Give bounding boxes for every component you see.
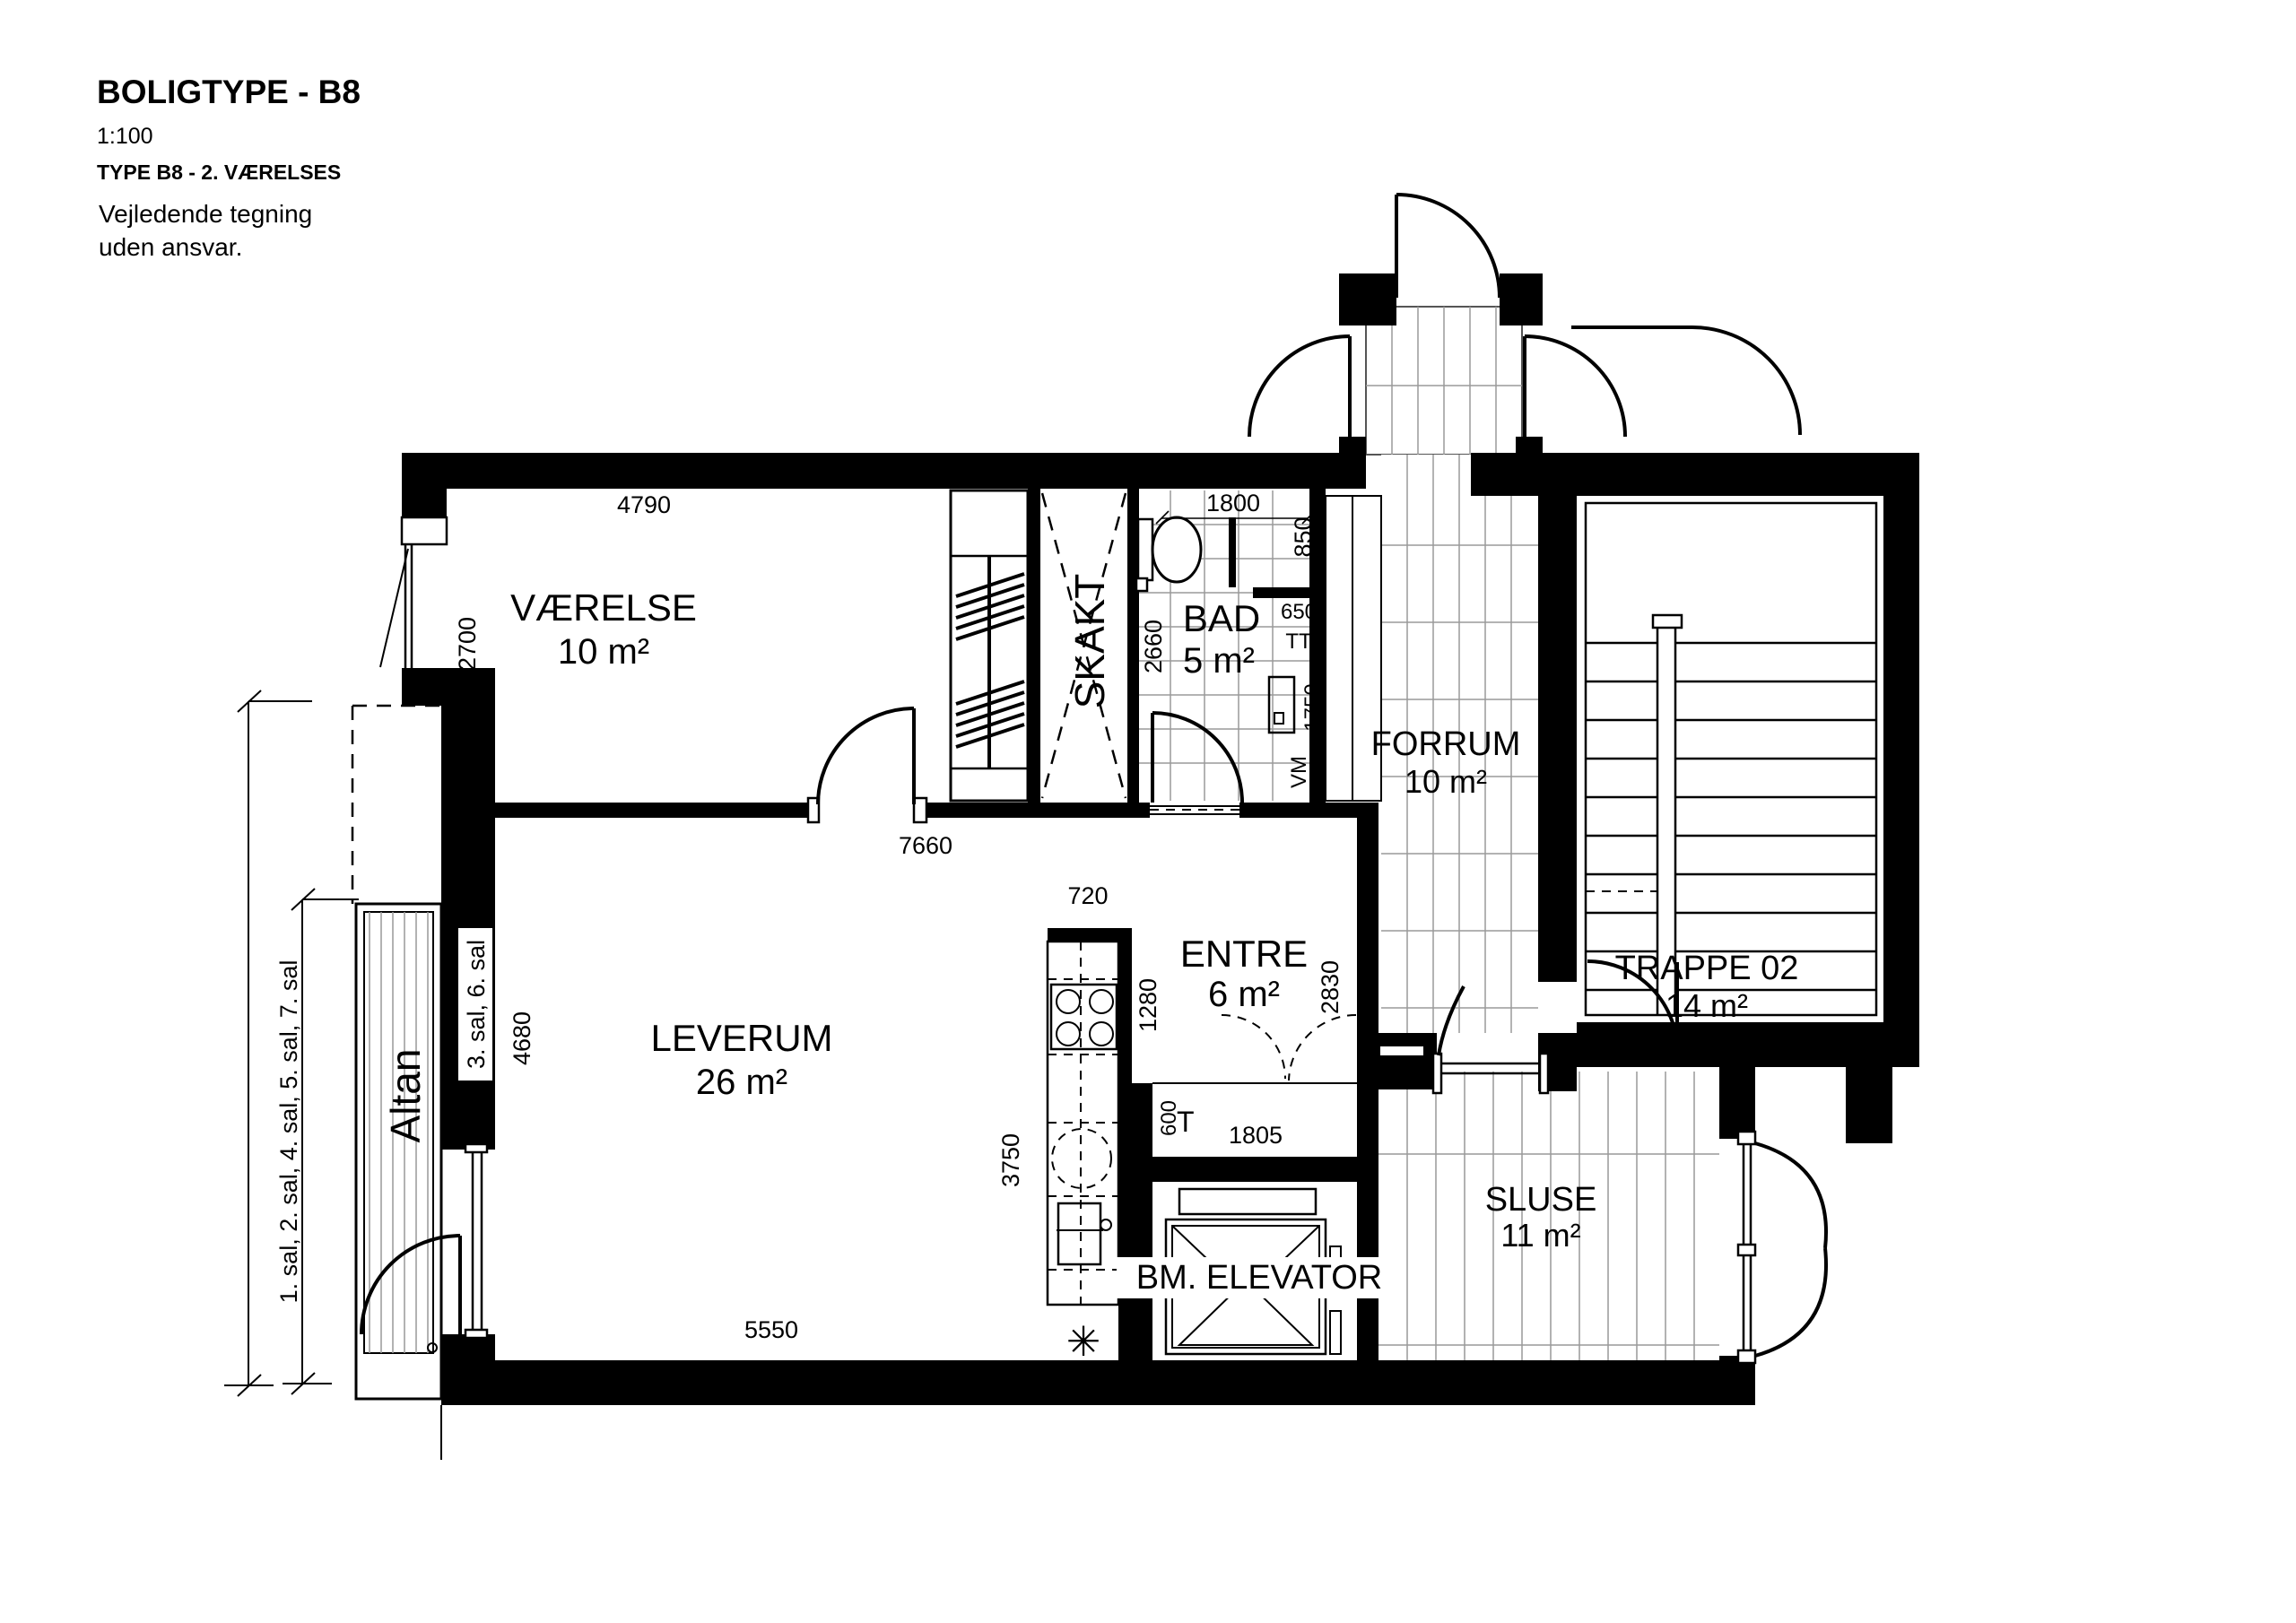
vestibule-door-left-arc <box>1249 336 1350 437</box>
dim-7660: 7660 <box>899 832 952 859</box>
room-vaerelse-area: 10 m² <box>558 632 649 672</box>
dim-3750: 3750 <box>997 1133 1024 1187</box>
room-leverum-label: LEVERUM <box>650 1017 832 1059</box>
drawing-scale: 1:100 <box>97 124 153 149</box>
disclaimer-line1: Vejledende tegning <box>99 200 312 228</box>
dim-4680: 4680 <box>509 1011 535 1065</box>
vestibule-tiles <box>1366 307 1522 455</box>
floor-plan-page: BOLIGTYPE - B8 1:100 TYPE B8 - 2. VÆRELS… <box>0 0 2296 1623</box>
main-entrance-door-arc <box>1396 195 1500 298</box>
vestibule-door-right-arc <box>1525 336 1625 437</box>
label-vm: VM <box>1287 756 1311 788</box>
entre-niche <box>1152 1015 1357 1083</box>
room-forrum-area: 10 m² <box>1405 763 1487 800</box>
disclaimer-line2: uden ansvar. <box>99 233 242 261</box>
room-sluse-label: SLUSE <box>1485 1181 1597 1219</box>
label-t: T <box>1177 1106 1195 1138</box>
room-forrum-label: FORRUM <box>1371 725 1521 763</box>
niche-door-right-arc <box>1289 1015 1356 1081</box>
dim-2700: 2700 <box>454 617 481 671</box>
room-bad-label: BAD <box>1183 597 1260 639</box>
room-entre-label: ENTRE <box>1180 933 1308 975</box>
dim-5550: 5550 <box>744 1316 798 1343</box>
floor-plan-drawing: BOLIGTYPE - B8 1:100 TYPE B8 - 2. VÆRELS… <box>0 0 2296 1623</box>
room-sluse-area: 11 m² <box>1500 1217 1580 1254</box>
dim-720: 720 <box>1067 882 1108 909</box>
room-entre-area: 6 m² <box>1208 975 1280 1014</box>
vaerelse-door <box>808 708 926 822</box>
floor-label-line2: 3. sal, 6. sal <box>463 940 490 1069</box>
dim-4790: 4790 <box>617 491 671 518</box>
room-skakt-label: SKAKT <box>1066 574 1113 709</box>
dim-2830: 2830 <box>1317 960 1344 1014</box>
title-block: BOLIGTYPE - B8 1:100 TYPE B8 - 2. VÆRELS… <box>97 74 361 261</box>
room-vaerelse-label: VÆRELSE <box>510 586 697 629</box>
dim-850: 850 <box>1290 516 1317 557</box>
drawing-subtitle: TYPE B8 - 2. VÆRELSES <box>97 161 341 184</box>
room-trappe-label: TRAPPE 02 <box>1615 950 1799 987</box>
dim-1280: 1280 <box>1135 978 1161 1032</box>
room-elevator-label: BM. ELEVATOR <box>1136 1259 1383 1297</box>
vaerelse-window <box>380 517 447 668</box>
floor-drain-icon: ✳ <box>1066 1317 1101 1366</box>
room-bad-area: 5 m² <box>1183 641 1255 681</box>
room-altan-label: Altan <box>382 1049 429 1143</box>
room-trappe-area: 14 m² <box>1665 987 1748 1024</box>
dim-1750: 1750 <box>1300 683 1325 731</box>
niche-door-left-arc <box>1222 1015 1285 1079</box>
dim-650: 650 <box>1281 600 1317 624</box>
dim-2660: 2660 <box>1140 620 1167 673</box>
label-tt: TT <box>1285 629 1312 654</box>
floor-label-line1: 1. sal, 2. sal, 4. sal, 5. sal, 7. sal <box>275 960 302 1304</box>
kitchen <box>1048 942 1118 1305</box>
room-leverum-area: 26 m² <box>696 1063 787 1102</box>
sluse-door-arc-lower <box>1755 1248 1826 1356</box>
dim-1800: 1800 <box>1206 490 1260 516</box>
page-title: BOLIGTYPE - B8 <box>97 74 361 110</box>
sluse-exit-doors <box>1738 1132 1826 1363</box>
wardrobe <box>951 490 1028 801</box>
neighbor-door-arc <box>1692 327 1800 435</box>
wall-notch <box>1380 1046 1423 1055</box>
sluse-door-arc-upper <box>1755 1143 1826 1248</box>
dim-1805: 1805 <box>1229 1122 1283 1149</box>
